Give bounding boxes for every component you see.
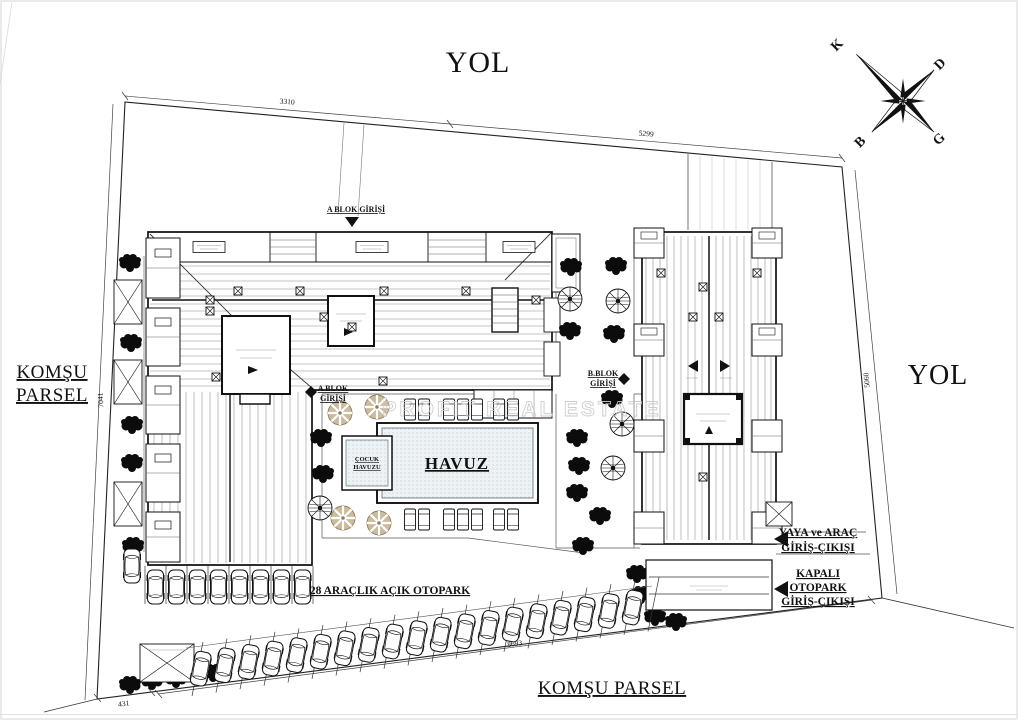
- tree-icon: [626, 565, 648, 583]
- tree-icon: [120, 334, 142, 352]
- tree-icon: [589, 507, 611, 525]
- compass-letter-west: B: [852, 134, 869, 151]
- neighbor-left-line2: PARSEL: [16, 385, 88, 406]
- watermark: PROFIT REAL ESTATE: [382, 398, 661, 421]
- dim-top-a: 3310: [279, 96, 295, 106]
- tree-icon: [566, 484, 588, 502]
- car-icon: [381, 623, 405, 660]
- compass-letter-east: D: [932, 56, 950, 74]
- dim-left: 7041: [96, 392, 106, 408]
- tree-icon: [119, 676, 141, 694]
- service-box-bottom: [140, 644, 194, 682]
- entrance-b-line2: GİRİŞİ: [590, 378, 616, 388]
- entrance-a-arrow-icon: [345, 217, 359, 227]
- kids-pool-label-line1: ÇOCUK: [355, 456, 379, 463]
- road-label-right: YOL: [908, 360, 969, 391]
- garage-ramp: [646, 560, 772, 610]
- building-b: [634, 228, 782, 544]
- car-icon: [597, 592, 621, 629]
- tree-icon: [665, 613, 687, 631]
- car-icon: [273, 570, 291, 604]
- entrance-b-arrow-icon: [618, 373, 630, 385]
- kids-pool: ÇOCUK HAVUZU: [342, 436, 392, 490]
- tree-icon: [308, 496, 332, 520]
- car-icon: [357, 626, 381, 663]
- core-a1: [222, 316, 290, 404]
- garage-arrow-icon: [774, 581, 788, 597]
- car-icon: [147, 570, 165, 604]
- tree-icon: [644, 608, 666, 626]
- car-icon: [231, 570, 249, 604]
- garage-label-line2: OTOPARK: [789, 582, 846, 594]
- car-icon: [525, 603, 549, 640]
- road-label-top: YOL: [446, 46, 511, 79]
- car-icon: [294, 570, 312, 604]
- tree-icon: [119, 254, 141, 272]
- gate-pedestrian-vehicle: YAYA ve ARAÇ GİRİŞ-ÇIKIŞI: [774, 527, 857, 554]
- core-b: [684, 394, 742, 444]
- balcony-band-a: [148, 232, 552, 262]
- entrance-a-top-label: A BLOK GİRİŞİ: [327, 204, 385, 214]
- service-boxes-left: [114, 280, 142, 526]
- unit-label-box: [193, 242, 225, 253]
- entrance-a-top: A BLOK GİRİŞİ: [327, 204, 385, 227]
- car-icon: [252, 570, 270, 604]
- car-icon: [621, 589, 645, 626]
- tree-icon: [566, 429, 588, 447]
- car-icon: [210, 570, 228, 604]
- guard-booth: [766, 502, 792, 526]
- kids-pool-label-line2: HAVUZU: [353, 464, 381, 471]
- tree-icon: [121, 454, 143, 472]
- car-icon: [309, 633, 333, 670]
- car-icon: [405, 620, 429, 657]
- dim-top-b: 5299: [638, 128, 654, 138]
- tree-icon: [572, 537, 594, 555]
- entrance-a-court-line2: GİRİŞİ: [320, 393, 346, 403]
- entrance-b: B.BLOK GİRİŞİ: [588, 369, 630, 388]
- tree-icon: [603, 325, 625, 343]
- core-a3-stairs: [492, 288, 518, 332]
- tree-icon: [559, 322, 581, 340]
- entry-walks: [338, 123, 772, 230]
- car-icon: [429, 616, 453, 653]
- compass-rose: K D B G: [825, 23, 965, 163]
- gate-label-line2: GİRİŞ-ÇIKIŞI: [781, 540, 855, 554]
- site-plan: 3310 5299 7041 5060 8693 431 YOL YOL KOM…: [0, 0, 1018, 720]
- car-icon: [453, 613, 477, 650]
- tree-icon: [568, 457, 590, 475]
- neighbor-parcel-label-left: KOMŞU PARSEL: [16, 362, 88, 406]
- tree-icon: [606, 289, 630, 313]
- entrance-a-court-line1: A BLOK: [318, 384, 349, 393]
- dim-right: 5060: [861, 372, 871, 388]
- tree-icon: [310, 429, 332, 447]
- car-icon: [168, 570, 186, 604]
- car-icon: [573, 596, 597, 633]
- tree-icon: [121, 416, 143, 434]
- entrance-b-line1: B.BLOK: [588, 369, 619, 378]
- tree-icon: [312, 465, 334, 483]
- pool-label: HAVUZ: [425, 454, 489, 473]
- open-parking-label: 28 ARAÇLIK AÇIK OTOPARK: [310, 585, 470, 597]
- dim-corner: 431: [118, 698, 131, 708]
- garage-label-line1: KAPALI: [796, 568, 840, 580]
- car-icon: [213, 647, 237, 684]
- unit-label-box: [356, 242, 388, 253]
- unit-label-box: [503, 242, 535, 253]
- car-icon: [477, 609, 501, 646]
- gate-garage: KAPALI OTOPARK GİRİŞ-ÇIKIŞI: [774, 568, 855, 608]
- tree-icon: [601, 456, 625, 480]
- core-a2: [328, 296, 374, 346]
- gate-label-line1: YAYA ve ARAÇ: [779, 527, 858, 539]
- car-icon: [549, 599, 573, 636]
- compass-letter-north: K: [828, 36, 846, 54]
- tree-icon: [605, 257, 627, 275]
- car-icon: [189, 570, 207, 604]
- car-icon: [333, 630, 357, 667]
- car-icon: [261, 640, 285, 677]
- compass-letter-south: G: [930, 130, 948, 148]
- balconies-a-west: [146, 238, 180, 562]
- tree-icon: [558, 287, 582, 311]
- garage-label-line3: GİRİŞ-ÇIKIŞI: [781, 594, 855, 608]
- neighbor-parcel-label-bottom: KOMŞU PARSEL: [538, 678, 686, 699]
- car-icon: [285, 637, 309, 674]
- site-plan-drawing: 3310 5299 7041 5060 8693 431 YOL YOL KOM…: [0, 0, 1018, 720]
- entrance-a-court-arrow-icon: [305, 386, 317, 398]
- neighbor-left-line1: KOMŞU: [16, 362, 87, 383]
- car-icon: [123, 549, 141, 583]
- car-icon: [237, 643, 261, 680]
